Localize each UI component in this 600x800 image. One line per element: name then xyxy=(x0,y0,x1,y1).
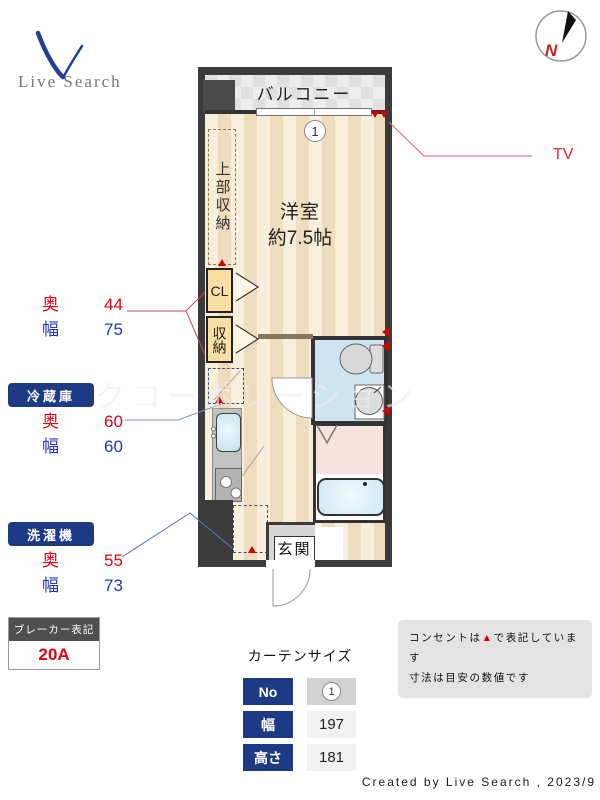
note-line2: 寸法は目安の数値です xyxy=(409,669,581,689)
outlet-marker-glyph: ▲ xyxy=(482,632,494,644)
storage-box: 収納 xyxy=(206,316,233,363)
width-label: 幅 xyxy=(42,573,64,598)
row-label: 高さ xyxy=(243,744,293,771)
kitchen-counter xyxy=(212,408,242,502)
fridge-depth-row: 奥60 xyxy=(42,409,123,434)
note-line1-pre: コンセントは xyxy=(409,632,482,644)
bathtub xyxy=(317,478,385,516)
cl-label: CL xyxy=(211,283,229,299)
storage-label: 収納 xyxy=(210,326,230,354)
closet-size-annotation: 奥44 幅75 xyxy=(42,292,123,342)
row-value: 181 xyxy=(307,744,356,771)
fridge-badge: 冷蔵庫 xyxy=(8,383,94,407)
row-value: 1 xyxy=(307,678,356,705)
kitchen-sink xyxy=(216,413,241,452)
floor-plan: バルコニー 1 洋室 約7.5帖 上部収納 CL 収納 玄関 xyxy=(198,67,392,567)
bathroom-floor xyxy=(316,426,383,474)
toilet-room xyxy=(311,336,388,425)
closet-width-row: 幅75 xyxy=(42,317,123,342)
width-value: 60 xyxy=(104,437,123,456)
depth-label: 奥 xyxy=(42,409,64,434)
compass: N xyxy=(533,8,589,69)
entrance-label-box: 玄関 xyxy=(274,536,315,561)
depth-value: 60 xyxy=(104,412,123,431)
credit-line: Created by Live Search , 2023/9 xyxy=(340,775,596,789)
window-number: 1 xyxy=(311,124,318,139)
balcony-window xyxy=(256,108,372,116)
row-label: No xyxy=(243,678,293,705)
entry-alcove xyxy=(315,527,343,560)
logo: Live Search xyxy=(15,15,145,97)
compass-n-letter: N xyxy=(545,41,558,60)
closet-leader-line xyxy=(127,292,205,355)
washer-badge: 洗濯機 xyxy=(8,522,94,546)
width-label: 幅 xyxy=(42,317,64,342)
curtain-number-badge: 1 xyxy=(322,682,341,701)
table-row: 幅 197 xyxy=(243,711,356,738)
fridge-space-box xyxy=(208,368,244,404)
entrance-label: 玄関 xyxy=(277,538,311,559)
logo-brand-text: Live Search xyxy=(18,72,138,92)
window-number-badge: 1 xyxy=(304,120,326,142)
room-name: 洋室 xyxy=(245,197,355,224)
breaker-title: ブレーカー表記 xyxy=(9,618,99,641)
depth-value: 55 xyxy=(104,551,123,570)
curtain-size-table: No 1 幅 197 高さ 181 xyxy=(243,678,356,773)
washer-size-annotation: 奥55 幅73 xyxy=(42,548,123,598)
row-label: 幅 xyxy=(243,711,293,738)
table-row: 高さ 181 xyxy=(243,744,356,771)
balcony-label: バルコニー xyxy=(239,80,352,105)
bathroom xyxy=(313,423,386,523)
window-divider xyxy=(314,109,315,115)
legend-note: コンセントは▲で表記しています 寸法は目安の数値です xyxy=(398,620,592,698)
entrance-door-swing xyxy=(273,569,310,606)
curtain-size-title: カーテンサイズ xyxy=(240,646,360,666)
row-value: 197 xyxy=(307,711,356,738)
closet-depth-row: 奥44 xyxy=(42,292,123,317)
washer-space-box xyxy=(233,505,268,553)
depth-label: 奥 xyxy=(42,292,64,317)
washer-width-row: 幅73 xyxy=(42,573,123,598)
fridge-size-annotation: 奥60 幅60 xyxy=(42,409,123,459)
table-row: No 1 xyxy=(243,678,356,705)
breaker-box: ブレーカー表記 20A xyxy=(8,617,100,670)
wall-block-topleft xyxy=(203,80,235,113)
breaker-value: 20A xyxy=(9,641,99,669)
room-size: 約7.5帖 xyxy=(245,223,355,250)
entrance-door-opening xyxy=(266,560,315,567)
kitchen-stove xyxy=(215,468,242,502)
width-value: 75 xyxy=(104,320,123,339)
width-label: 幅 xyxy=(42,434,64,459)
depth-label: 奥 xyxy=(42,548,64,573)
upper-storage-box: 上部収納 xyxy=(208,129,236,265)
fridge-width-row: 幅60 xyxy=(42,434,123,459)
cl-closet-box: CL xyxy=(206,268,233,313)
width-value: 73 xyxy=(104,576,123,595)
wall-block-bottomleft xyxy=(198,500,233,567)
entrance-area: 玄関 xyxy=(266,522,315,560)
washer-depth-row: 奥55 xyxy=(42,548,123,573)
note-line1: コンセントは▲で表記しています xyxy=(409,629,581,669)
tv-annotation: TV xyxy=(553,146,573,164)
depth-value: 44 xyxy=(104,295,123,314)
tv-leader-line xyxy=(389,122,532,156)
compass-icon: N xyxy=(533,8,589,64)
upper-storage-label: 上部収納 xyxy=(212,161,233,233)
